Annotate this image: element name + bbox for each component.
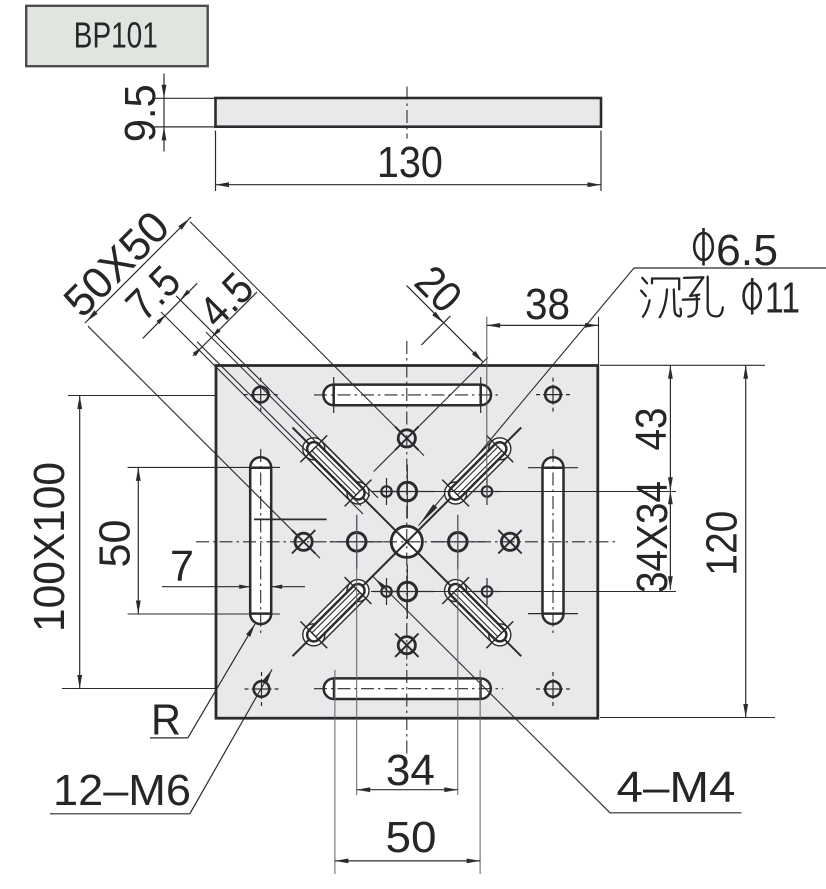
- svg-text:R: R: [151, 696, 181, 745]
- svg-text:38: 38: [525, 280, 570, 329]
- svg-text:50: 50: [91, 520, 140, 568]
- svg-text:12–M6: 12–M6: [53, 766, 191, 815]
- svg-text:100X100: 100X100: [25, 462, 74, 632]
- svg-text:120: 120: [698, 511, 747, 576]
- svg-text:BP101: BP101: [74, 15, 158, 56]
- svg-text:50: 50: [386, 813, 437, 862]
- svg-text:4.5: 4.5: [190, 263, 264, 337]
- svg-text:4–M4: 4–M4: [617, 763, 736, 812]
- svg-text:34: 34: [386, 746, 435, 795]
- svg-text:130: 130: [377, 138, 443, 187]
- svg-text:43: 43: [627, 408, 676, 451]
- svg-text:7: 7: [170, 542, 194, 591]
- svg-text:20: 20: [405, 256, 471, 322]
- svg-text:9.5: 9.5: [116, 84, 165, 142]
- svg-text:11: 11: [765, 274, 800, 323]
- svg-text:6.5: 6.5: [716, 226, 778, 275]
- svg-text:34X34: 34X34: [628, 481, 677, 593]
